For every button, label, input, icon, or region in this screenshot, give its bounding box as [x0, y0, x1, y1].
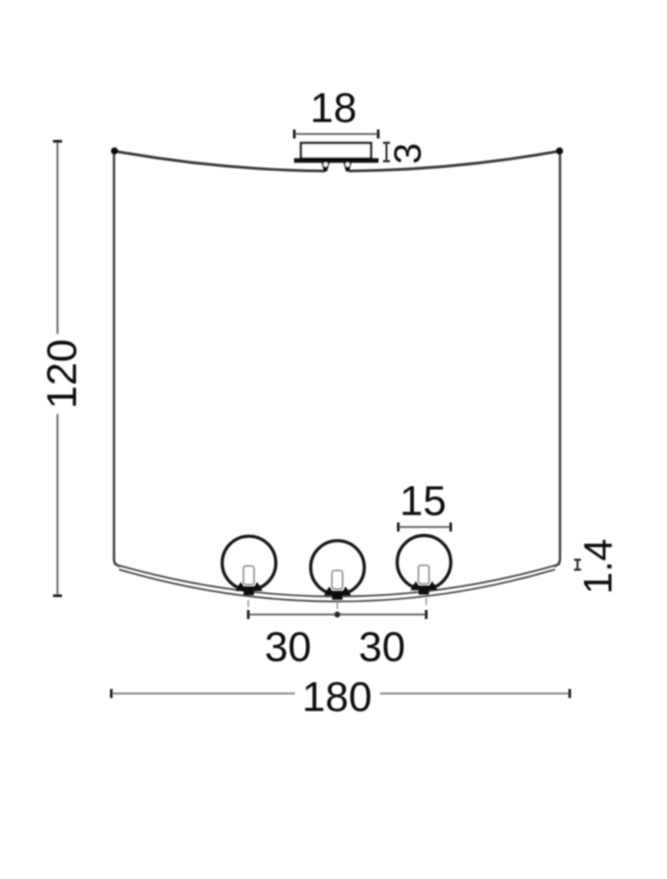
svg-text:30: 30 [265, 623, 312, 670]
svg-text:1.4: 1.4 [577, 539, 621, 595]
svg-text:15: 15 [400, 477, 447, 524]
svg-text:180: 180 [302, 673, 372, 720]
svg-text:120: 120 [38, 339, 85, 409]
svg-text:3: 3 [388, 143, 430, 164]
svg-text:18: 18 [310, 84, 357, 131]
svg-text:30: 30 [359, 623, 406, 670]
